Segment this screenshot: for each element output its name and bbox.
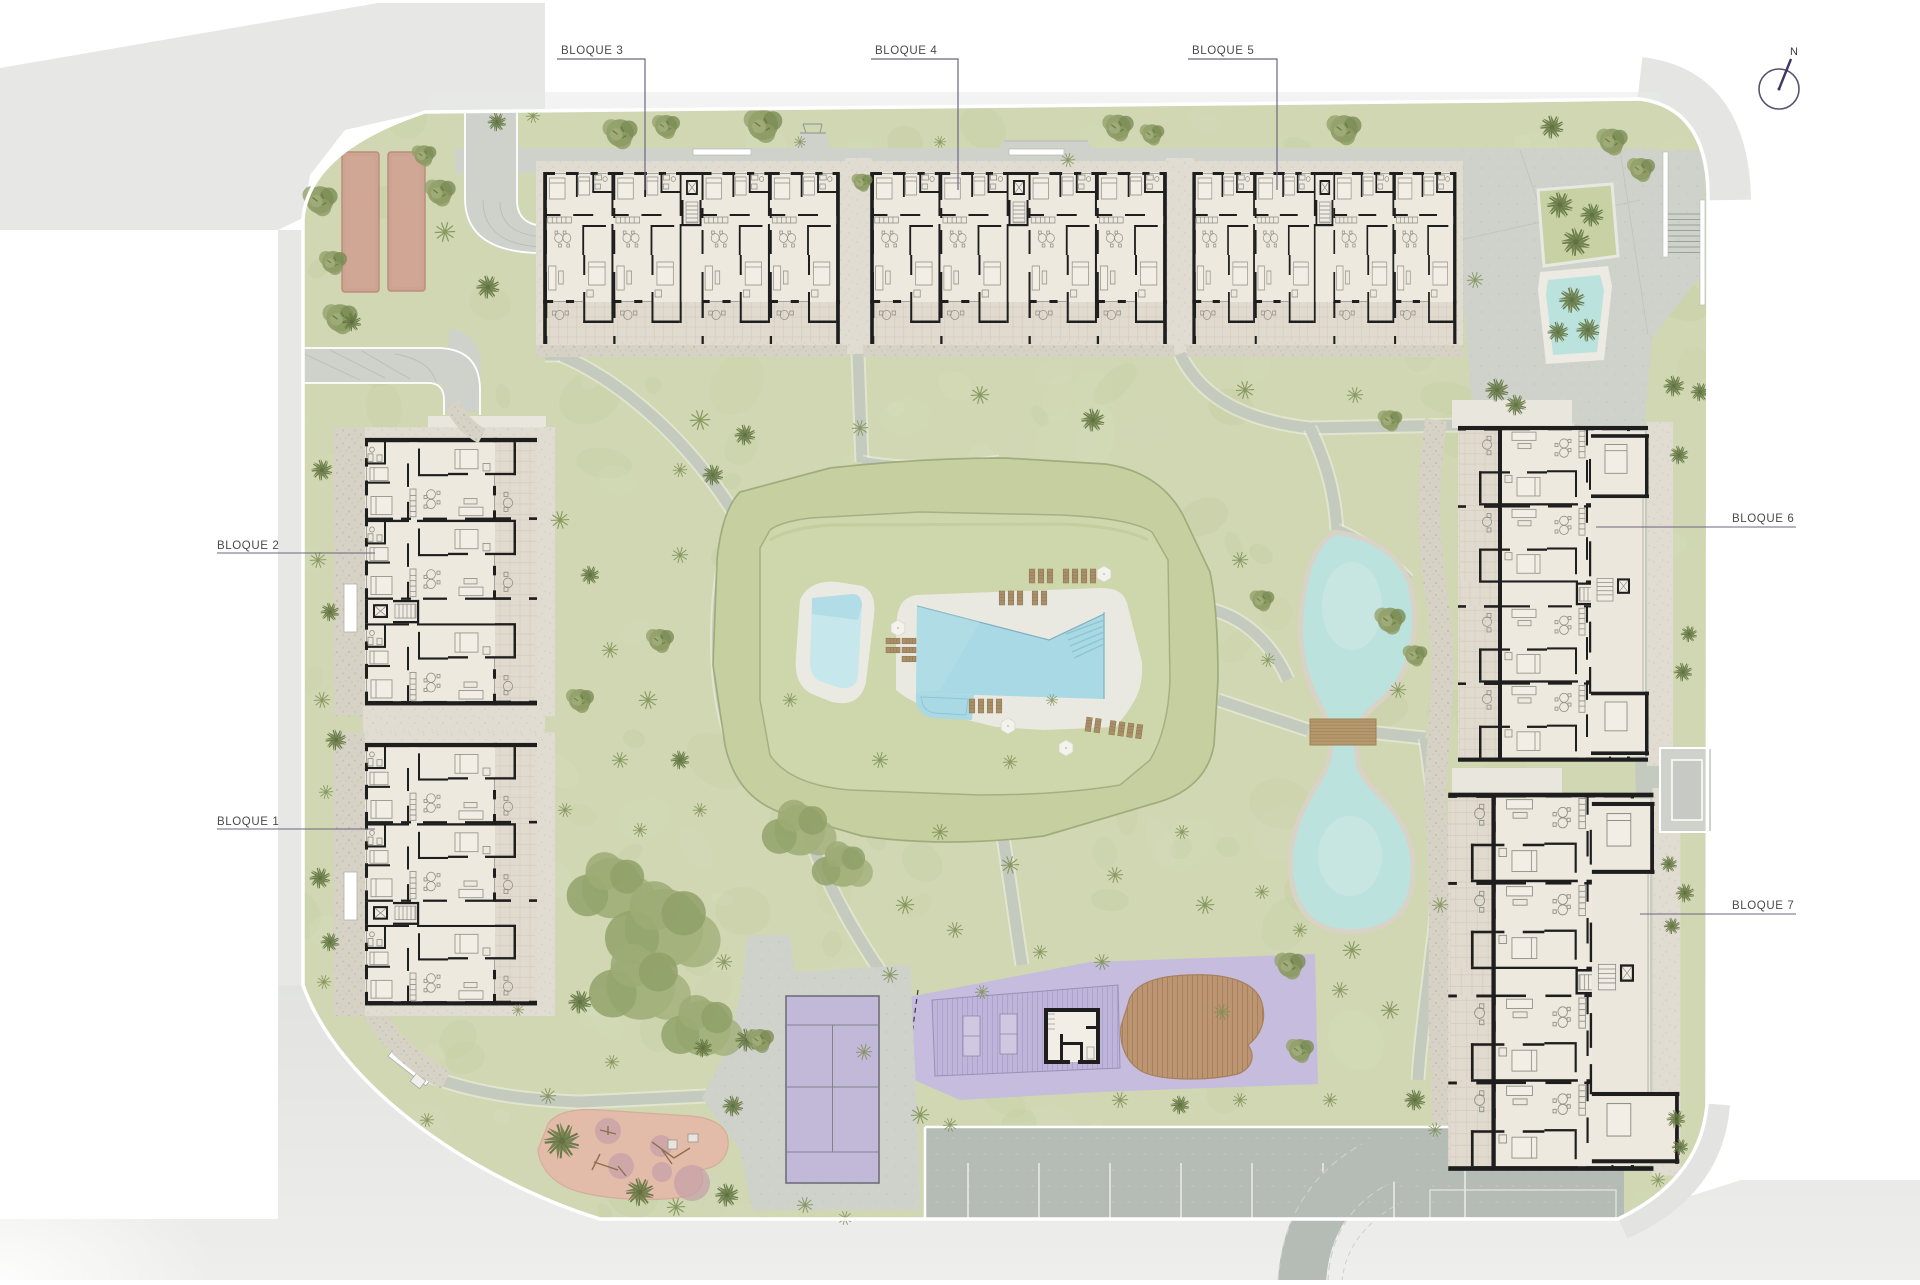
svg-text:BLOQUE 5: BLOQUE 5 [1192, 45, 1254, 57]
svg-text:BLOQUE 2: BLOQUE 2 [217, 540, 279, 552]
svg-text:BLOQUE 6: BLOQUE 6 [1732, 513, 1794, 525]
svg-text:N: N [1790, 46, 1798, 58]
svg-text:BLOQUE 1: BLOQUE 1 [217, 816, 279, 828]
svg-text:BLOQUE 3: BLOQUE 3 [561, 45, 623, 57]
svg-text:BLOQUE 4: BLOQUE 4 [875, 45, 937, 57]
svg-text:BLOQUE 7: BLOQUE 7 [1732, 900, 1794, 912]
